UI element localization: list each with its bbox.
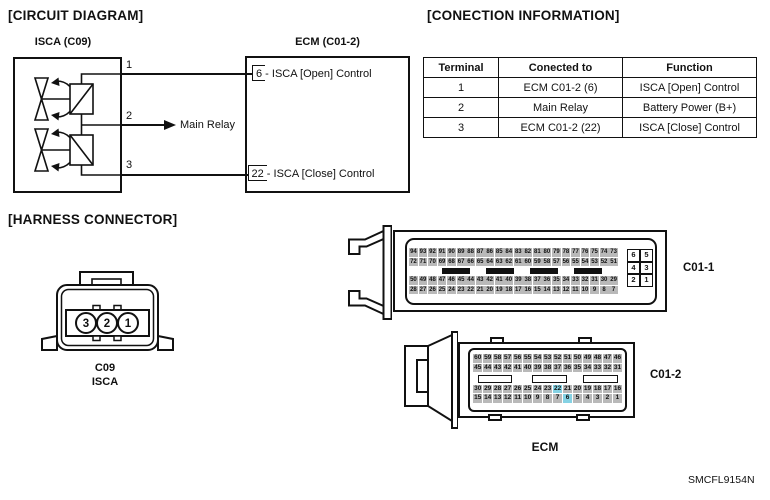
c01-1-pin-43: 43: [476, 276, 485, 285]
c01-2-pin-52: 52: [553, 354, 562, 363]
c01-1-pin-79: 79: [552, 248, 561, 257]
document-code: SMCFL9154N: [688, 474, 755, 486]
c01-1-pin-18: 18: [504, 286, 513, 295]
c01-1-label: C01-1: [683, 262, 714, 274]
c01-1-pin-19: 19: [495, 286, 504, 295]
c01-1-pin-78: 78: [562, 248, 571, 257]
c01-1-pin-52: 52: [600, 258, 609, 267]
rotation-arrowhead-icon: [51, 78, 60, 87]
c01-2-pin-5: 5: [573, 394, 582, 403]
pin-row: 605958575655545352515049484746: [473, 354, 623, 364]
c01-2-pin-3: 3: [593, 394, 602, 403]
c01-1-pin-87: 87: [476, 248, 485, 257]
c01-1-pin-59: 59: [533, 258, 542, 267]
c01-2-pin-55: 55: [523, 354, 532, 363]
c01-2-pin-50: 50: [573, 354, 582, 363]
rotation-arrowhead-icon: [51, 163, 60, 172]
c01-1-side-pin-block: 654321: [627, 249, 653, 287]
c01-1-pin-66: 66: [466, 258, 475, 267]
c01-2-pin-9: 9: [533, 394, 542, 403]
col-header-function: Function: [623, 58, 757, 78]
table-row: 3 ECM C01-2 (22) ISCA [Close] Control: [424, 118, 757, 138]
isca-actuator-icon: [13, 57, 122, 193]
ecm-connector-c01-2: 6059585756555453525150494847464544434241…: [398, 330, 648, 430]
c01-2-pin-25: 25: [523, 385, 532, 394]
c01-1-pin-20: 20: [485, 286, 494, 295]
housing-tab: [576, 414, 590, 421]
c01-2-pin-59: 59: [483, 354, 492, 363]
c01-1-pin-35: 35: [552, 276, 561, 285]
c01-1-pin-22: 22: [466, 286, 475, 295]
c01-2-pin-1: 1: [613, 394, 622, 403]
c01-2-pin-34: 34: [583, 364, 592, 373]
c01-1-pin-90: 90: [447, 248, 456, 257]
c01-2-pin-17: 17: [603, 385, 612, 394]
c01-2-pin-46: 46: [613, 354, 622, 363]
c01-1-pin-62: 62: [504, 258, 513, 267]
c01-1-pin-5: 5: [640, 249, 653, 262]
c01-2-pin-48: 48: [593, 354, 602, 363]
c01-1-pin-40: 40: [504, 276, 513, 285]
c01-1-pin-16: 16: [523, 286, 532, 295]
keying-slot: [478, 375, 512, 383]
isca-box-label: ISCA (C09): [8, 36, 118, 48]
ecm-pin-6-label: 6 - ISCA [Open] Control: [256, 68, 372, 80]
cell-connected-3: ECM C01-2 (22): [499, 118, 623, 138]
c01-1-pin-15: 15: [533, 286, 542, 295]
pin-row: 21: [627, 274, 653, 287]
ecm-caption: ECM: [515, 440, 575, 454]
c01-2-pin-18: 18: [593, 385, 602, 394]
c01-1-pin-13: 13: [552, 286, 561, 295]
c01-1-pin-11: 11: [571, 286, 580, 295]
terminal-3-number: 3: [126, 159, 132, 171]
c01-1-pin-63: 63: [495, 258, 504, 267]
c01-2-pin-53: 53: [543, 354, 552, 363]
c01-1-pin-44: 44: [466, 276, 475, 285]
c01-1-pin-57: 57: [552, 258, 561, 267]
c01-1-pin-75: 75: [590, 248, 599, 257]
keying-bar: [574, 268, 602, 274]
c01-1-pin-34: 34: [562, 276, 571, 285]
c01-1-pin-2: 2: [627, 274, 640, 287]
c01-2-pin-22: 22: [553, 385, 562, 394]
c01-1-pin-67: 67: [457, 258, 466, 267]
c01-1-pin-4: 4: [627, 262, 640, 275]
table-row: 2 Main Relay Battery Power (B+): [424, 98, 757, 118]
harness-connector-title: [HARNESS CONNECTOR]: [8, 212, 177, 227]
c01-1-pin-38: 38: [523, 276, 532, 285]
c01-1-pin-88: 88: [466, 248, 475, 257]
c01-1-pin-82: 82: [523, 248, 532, 257]
c01-2-pin-51: 51: [563, 354, 572, 363]
c01-1-pin-26: 26: [428, 286, 437, 295]
col-header-connected-to: Conected to: [499, 58, 623, 78]
c01-1-pin-80: 80: [542, 248, 551, 257]
c01-2-pin-26: 26: [513, 385, 522, 394]
c01-2-pin-35: 35: [573, 364, 582, 373]
c01-1-pin-61: 61: [514, 258, 523, 267]
c01-1-pin-30: 30: [600, 276, 609, 285]
c01-1-pin-86: 86: [485, 248, 494, 257]
c01-1-pin-58: 58: [542, 258, 551, 267]
c01-1-pin-7: 7: [609, 286, 618, 295]
c01-1-pin-83: 83: [514, 248, 523, 257]
c01-2-pin-27: 27: [503, 385, 512, 394]
harness-pin-1: 1: [125, 318, 132, 330]
col-header-terminal: Terminal: [424, 58, 499, 78]
c01-1-pin-45: 45: [457, 276, 466, 285]
c01-1-pin-81: 81: [533, 248, 542, 257]
c01-2-pin-23: 23: [543, 385, 552, 394]
c01-1-pin-68: 68: [447, 258, 456, 267]
c01-2-pin-43: 43: [493, 364, 502, 373]
c01-2-pin-54: 54: [533, 354, 542, 363]
c01-1-pin-48: 48: [428, 276, 437, 285]
c01-1-pin-76: 76: [581, 248, 590, 257]
keying-bar: [530, 268, 558, 274]
rotation-arrowhead-icon: [51, 129, 60, 138]
c01-1-pin-77: 77: [571, 248, 580, 257]
housing-tab: [488, 414, 502, 421]
service-manual-page: [CIRCUIT DIAGRAM] ISCA (C09) ECM (C01-2): [0, 0, 770, 500]
c01-2-pin-29: 29: [483, 385, 492, 394]
c01-1-pin-85: 85: [495, 248, 504, 257]
c01-1-pin-91: 91: [438, 248, 447, 257]
pin-row: 43: [627, 262, 653, 275]
c01-1-pin-1: 1: [640, 274, 653, 287]
terminal-2-number: 2: [126, 110, 132, 122]
harness-pin-3: 3: [83, 318, 89, 330]
c01-2-pin-39: 39: [533, 364, 542, 373]
cell-terminal-1: 1: [424, 78, 499, 98]
cell-terminal-3: 3: [424, 118, 499, 138]
connector-lock-lever-icon: [345, 225, 392, 320]
c01-1-pin-54: 54: [581, 258, 590, 267]
pin-row: 151413121110987654321: [473, 394, 623, 404]
harness-pin-2: 2: [104, 318, 110, 330]
cell-function-3: ISCA [Close] Control: [623, 118, 757, 138]
c01-1-pin-29: 29: [609, 276, 618, 285]
connection-info-title: [CONECTION INFORMATION]: [427, 8, 620, 23]
c01-1-pin-42: 42: [485, 276, 494, 285]
harness-connector-code: C09: [65, 362, 145, 374]
c01-2-pin-45: 45: [473, 364, 482, 373]
table-header-row: Terminal Conected to Function: [424, 58, 757, 78]
c01-1-pin-70: 70: [428, 258, 437, 267]
c01-2-pin-42: 42: [503, 364, 512, 373]
c01-1-pin-74: 74: [600, 248, 609, 257]
c01-2-pin-24: 24: [533, 385, 542, 394]
keying-bar: [486, 268, 514, 274]
c01-2-pin-30: 30: [473, 385, 482, 394]
connection-info-table: Terminal Conected to Function 1 ECM C01-…: [423, 57, 757, 138]
harness-connector-c09-icon: 3 2 1: [40, 262, 180, 362]
c01-2-pin-13: 13: [493, 394, 502, 403]
c01-1-pin-12: 12: [562, 286, 571, 295]
c01-1-pin-14: 14: [542, 286, 551, 295]
c01-1-pin-21: 21: [476, 286, 485, 295]
rotation-arrowhead-icon: [51, 112, 60, 121]
pin-row: 454443424140393837363534333231: [473, 364, 623, 374]
c01-2-pin-8: 8: [543, 394, 552, 403]
c01-2-pin-40: 40: [523, 364, 532, 373]
wire-terminal-2: [122, 124, 164, 126]
c01-2-pin-16: 16: [613, 385, 622, 394]
c01-1-pin-50: 50: [409, 276, 418, 285]
cell-connected-2: Main Relay: [499, 98, 623, 118]
c01-1-pin-93: 93: [419, 248, 428, 257]
c01-1-pin-55: 55: [571, 258, 580, 267]
c01-1-pin-10: 10: [581, 286, 590, 295]
keying-bar: [442, 268, 470, 274]
cell-connected-1: ECM C01-2 (6): [499, 78, 623, 98]
c01-1-pin-39: 39: [514, 276, 523, 285]
keying-slot: [583, 375, 618, 383]
wire-terminal-1: [122, 73, 252, 75]
c01-1-pin-28: 28: [409, 286, 418, 295]
c01-2-pin-49: 49: [583, 354, 592, 363]
c01-1-pin-24: 24: [447, 286, 456, 295]
terminal-1-number: 1: [126, 59, 132, 71]
c01-1-pin-32: 32: [581, 276, 590, 285]
c01-2-pin-37: 37: [553, 364, 562, 373]
c01-1-pin-9: 9: [590, 286, 599, 295]
c01-1-pin-65: 65: [476, 258, 485, 267]
c01-1-pin-51: 51: [609, 258, 618, 267]
ecm-box-label: ECM (C01-2): [245, 36, 410, 48]
c01-2-pin-56: 56: [513, 354, 522, 363]
c01-1-pin-47: 47: [438, 276, 447, 285]
cell-function-1: ISCA [Open] Control: [623, 78, 757, 98]
main-relay-label: Main Relay: [180, 119, 235, 131]
circuit-diagram-title: [CIRCUIT DIAGRAM]: [8, 8, 143, 23]
c01-2-pin-32: 32: [603, 364, 612, 373]
cell-function-2: Battery Power (B+): [623, 98, 757, 118]
cell-terminal-2: 2: [424, 98, 499, 118]
c01-2-pin-38: 38: [543, 364, 552, 373]
c01-1-pin-41: 41: [495, 276, 504, 285]
wire-terminal-3: [122, 174, 248, 176]
c01-2-pin-15: 15: [473, 394, 482, 403]
c01-1-pin-8: 8: [600, 286, 609, 295]
ecm-pin-22-label: 22 - ISCA [Close] Control: [252, 168, 375, 180]
c01-1-pin-49: 49: [419, 276, 428, 285]
c01-2-pin-44: 44: [483, 364, 492, 373]
c01-1-pin-3: 3: [640, 262, 653, 275]
ecm-connector-c01-1: 9493929190898887868584838281807978777675…: [345, 225, 675, 320]
pin-row: 2827262524232221201918171615141312111098…: [409, 286, 619, 296]
c01-2-pin-12: 12: [503, 394, 512, 403]
c01-1-pin-17: 17: [514, 286, 523, 295]
mount-wing-right: [158, 336, 173, 350]
c01-2-pin-36: 36: [563, 364, 572, 373]
c01-2-pin-4: 4: [583, 394, 592, 403]
c01-1-pin-25: 25: [438, 286, 447, 295]
pin-row: 5049484746454443424140393837363534333231…: [409, 276, 619, 286]
c01-2-pin-19: 19: [583, 385, 592, 394]
c01-1-pin-60: 60: [523, 258, 532, 267]
c01-2-pin-33: 33: [593, 364, 602, 373]
c01-1-pin-72: 72: [409, 258, 418, 267]
c01-1-pin-37: 37: [533, 276, 542, 285]
c01-2-label: C01-2: [650, 369, 681, 381]
harness-connector-name: ISCA: [65, 376, 145, 388]
c01-1-pin-89: 89: [457, 248, 466, 257]
c01-2-pin-28: 28: [493, 385, 502, 394]
c01-2-pin-10: 10: [523, 394, 532, 403]
pin-row: 7271706968676665646362616059585756555453…: [409, 258, 619, 268]
connector-lock-lever-icon: [398, 330, 458, 430]
c01-2-pin-7: 7: [553, 394, 562, 403]
mount-wing-left: [42, 336, 57, 350]
c01-2-pin-20: 20: [573, 385, 582, 394]
c01-1-pin-69: 69: [438, 258, 447, 267]
c01-1-pin-56: 56: [562, 258, 571, 267]
c01-2-pin-31: 31: [613, 364, 622, 373]
table-row: 1 ECM C01-2 (6) ISCA [Open] Control: [424, 78, 757, 98]
c01-2-pin-11: 11: [513, 394, 522, 403]
c01-2-pin-14: 14: [483, 394, 492, 403]
c01-1-pin-23: 23: [457, 286, 466, 295]
c01-2-pin-60: 60: [473, 354, 482, 363]
c01-2-pin-58: 58: [493, 354, 502, 363]
c01-1-pin-84: 84: [504, 248, 513, 257]
pin-row: 9493929190898887868584838281807978777675…: [409, 248, 619, 258]
main-relay-arrowhead-icon: [164, 120, 176, 130]
c01-1-pin-36: 36: [542, 276, 551, 285]
c01-1-pin-73: 73: [609, 248, 618, 257]
c01-2-pin-41: 41: [513, 364, 522, 373]
c01-1-pin-27: 27: [419, 286, 428, 295]
c01-1-pin-6: 6: [627, 249, 640, 262]
c01-1-pin-92: 92: [428, 248, 437, 257]
c01-1-pin-94: 94: [409, 248, 418, 257]
pin-row: 302928272625242322212019181716: [473, 385, 623, 395]
pin-row: 65: [627, 249, 653, 262]
c01-2-pin-6: 6: [563, 394, 572, 403]
keying-slot: [532, 375, 567, 383]
c01-2-pin-57: 57: [503, 354, 512, 363]
c01-1-pin-33: 33: [571, 276, 580, 285]
c01-2-pin-2: 2: [603, 394, 612, 403]
c01-1-pin-31: 31: [590, 276, 599, 285]
c01-1-pin-53: 53: [590, 258, 599, 267]
c01-1-pin-46: 46: [447, 276, 456, 285]
c01-2-pin-47: 47: [603, 354, 612, 363]
c01-1-pin-71: 71: [419, 258, 428, 267]
c01-2-pin-21: 21: [563, 385, 572, 394]
c01-1-pin-64: 64: [485, 258, 494, 267]
